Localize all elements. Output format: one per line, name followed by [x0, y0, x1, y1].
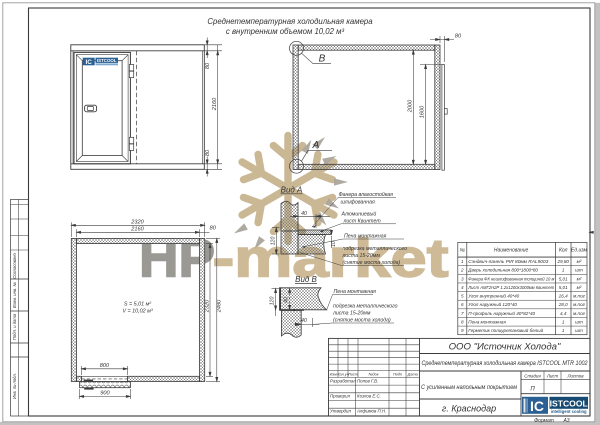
svg-text:1: 1 — [461, 259, 464, 264]
svg-text:Кол.уч: Кол.уч — [337, 373, 348, 377]
svg-text:800: 800 — [100, 363, 110, 369]
svg-text:2480: 2480 — [216, 299, 222, 313]
svg-text:(снятие моста холода): (снятие моста холода) — [343, 260, 401, 266]
svg-text:80: 80 — [210, 226, 217, 232]
svg-text:Сэндвич-панель PIR 80мм RAL900: Сэндвич-панель PIR 80мм RAL9003 — [468, 259, 548, 264]
svg-text:А3: А3 — [562, 418, 569, 424]
svg-text:Угол внутренний 40*40: Угол внутренний 40*40 — [468, 293, 519, 299]
svg-text:Вид А: Вид А — [281, 185, 303, 194]
svg-text:м.пог: м.пог — [573, 302, 586, 307]
svg-text:ООО "Источник Холода": ООО "Источник Холода" — [449, 342, 561, 353]
svg-text:Пена монтажная: Пена монтажная — [468, 320, 506, 325]
svg-text:40: 40 — [283, 297, 289, 303]
svg-text:Дверь холодильная 800*1800*80: Дверь холодильная 800*1800*80 — [467, 268, 538, 273]
svg-text:Среднетемпературная холодильна: Среднетемпературная холодильная камера — [207, 17, 373, 26]
svg-text:5,01: 5,01 — [559, 276, 568, 281]
svg-text:с внутренним объемом 10,02 м³: с внутренним объемом 10,02 м³ — [226, 27, 345, 36]
svg-text:ISTCOOL: ISTCOOL — [550, 398, 588, 408]
svg-text:3: 3 — [461, 276, 464, 281]
svg-text:40: 40 — [301, 211, 307, 217]
svg-text:Формат: Формат — [534, 418, 554, 424]
svg-text:Листов: Листов — [567, 374, 585, 379]
svg-text:Кол: Кол — [559, 248, 568, 254]
svg-text:подрезка металлического: подрезка металлического — [333, 304, 398, 310]
svg-text:900: 900 — [100, 390, 110, 396]
svg-text:V = 10,02 м³: V = 10,02 м³ — [122, 308, 152, 314]
svg-text:26,4: 26,4 — [558, 294, 568, 299]
svg-text:2000: 2000 — [407, 99, 413, 113]
svg-text:8: 8 — [461, 320, 464, 325]
svg-text:Утвердил: Утвердил — [330, 408, 351, 413]
svg-text:Алфимов П.Н.: Алфимов П.Н. — [356, 408, 386, 413]
svg-text:№док: №док — [368, 373, 378, 377]
svg-text:5,01: 5,01 — [559, 285, 568, 290]
svg-text:Стадия: Стадия — [524, 374, 541, 379]
svg-text:4,4: 4,4 — [560, 311, 567, 316]
svg-text:10: 10 — [331, 241, 337, 247]
svg-text:2320: 2320 — [204, 299, 210, 313]
svg-text:Лист АМГ2Н2Р 1.2х1200х3000мм К: Лист АМГ2Н2Р 1.2х1200х3000мм Квинтет — [467, 285, 554, 290]
svg-text:1: 1 — [562, 320, 565, 325]
svg-text:Ед.изм: Ед.изм — [571, 248, 588, 254]
svg-text:28,0: 28,0 — [558, 302, 568, 307]
svg-text:подрезка металлического: подрезка металлического — [343, 246, 408, 252]
svg-text:шлифованная: шлифованная — [341, 199, 375, 205]
svg-text:листа 15-20мм: листа 15-20мм — [332, 311, 371, 317]
svg-text:80: 80 — [205, 149, 211, 156]
svg-text:Инв. № подл.: Инв. № подл. — [12, 373, 17, 399]
svg-text:Лист: Лист — [546, 374, 559, 379]
svg-text:5: 5 — [461, 294, 464, 299]
svg-text:Разработал: Разработал — [330, 378, 356, 383]
svg-text:Среднетемпературная холодильна: Среднетемпературная холодильная камера I… — [422, 360, 588, 367]
svg-text:Фанера влагостойкая: Фанера влагостойкая — [339, 191, 394, 198]
svg-text:Взам. инв. №: Взам. инв. № — [12, 282, 17, 308]
svg-text:1: 1 — [562, 268, 565, 273]
svg-text:м.пог: м.пог — [573, 311, 586, 316]
svg-text:2320: 2320 — [130, 219, 144, 225]
svg-text:1600: 1600 — [420, 105, 426, 118]
svg-text:IC: IC — [530, 398, 544, 414]
svg-text:Подп. и дата: Подп. и дата — [12, 313, 17, 340]
svg-text:П-профиль наружный 40*82*40: П-профиль наружный 40*82*40 — [468, 310, 535, 316]
svg-text:Подп: Подп — [393, 373, 403, 377]
svg-text:intelligent cooling: intelligent cooling — [551, 409, 587, 414]
svg-text:120: 120 — [270, 237, 276, 246]
svg-text:листа 15-20мм: листа 15-20мм — [342, 253, 381, 259]
svg-text:шт: шт — [575, 328, 583, 333]
svg-text:B: B — [319, 54, 326, 65]
svg-text:г. Краснодар: г. Краснодар — [442, 404, 496, 414]
svg-text:7: 7 — [461, 311, 464, 316]
svg-text:м²: м² — [577, 285, 582, 290]
svg-text:80: 80 — [455, 34, 462, 40]
svg-text:6: 6 — [461, 302, 464, 307]
svg-text:IC: IC — [85, 59, 92, 66]
svg-text:(снятие моста холода): (снятие моста холода) — [333, 318, 391, 324]
svg-text:Дата: Дата — [407, 373, 418, 377]
svg-text:2160: 2160 — [212, 97, 218, 111]
svg-text:м²: м² — [577, 276, 582, 281]
svg-text:ISTCOOL: ISTCOOL — [97, 58, 117, 63]
svg-text:Козлов Е.С.: Козлов Е.С. — [357, 393, 381, 398]
svg-text:м.пог: м.пог — [573, 294, 586, 299]
svg-text:1: 1 — [562, 328, 565, 333]
svg-text:П: П — [530, 387, 535, 393]
svg-text:-market: -market — [213, 229, 449, 289]
svg-text:40: 40 — [301, 318, 307, 324]
svg-text:S = 5,01 м²: S = 5,01 м² — [124, 301, 151, 307]
svg-text:С усиленным напольным покрытие: С усиленным напольным покрытием — [421, 384, 518, 391]
svg-text:м²: м² — [577, 259, 582, 264]
svg-text:2160: 2160 — [130, 227, 144, 233]
svg-text:Согласовано: Согласовано — [12, 253, 17, 279]
svg-text:шт: шт — [575, 268, 583, 273]
svg-text:Изм: Изм — [330, 373, 337, 377]
svg-text:Угол наружный 120*40: Угол наружный 120*40 — [468, 301, 517, 307]
svg-text:4: 4 — [461, 285, 464, 290]
svg-text:Фанера ФК нешлифованная толщин: Фанера ФК нешлифованная толщиной 10 м — [468, 275, 555, 281]
svg-text:Вид В: Вид В — [295, 275, 317, 284]
svg-text:Пена монтажная: Пена монтажная — [334, 289, 377, 295]
svg-text:9: 9 — [461, 328, 464, 333]
svg-text:120: 120 — [270, 297, 276, 306]
svg-text:A: A — [312, 140, 320, 151]
svg-text:Наименование: Наименование — [494, 248, 529, 254]
svg-text:80: 80 — [205, 62, 211, 69]
svg-text:2: 2 — [460, 268, 464, 273]
svg-text:шт: шт — [575, 320, 583, 325]
svg-text:Алюминиевый: Алюминиевый — [341, 211, 377, 218]
svg-text:Попов Г.В.: Попов Г.В. — [357, 378, 378, 383]
svg-text:Герметик полиуретановый белый: Герметик полиуретановый белый — [468, 327, 543, 333]
svg-text:Проверил: Проверил — [330, 393, 351, 398]
svg-text:Лист: Лист — [347, 373, 358, 377]
svg-text:29,80: 29,80 — [556, 259, 569, 264]
svg-text:№: № — [460, 248, 466, 254]
